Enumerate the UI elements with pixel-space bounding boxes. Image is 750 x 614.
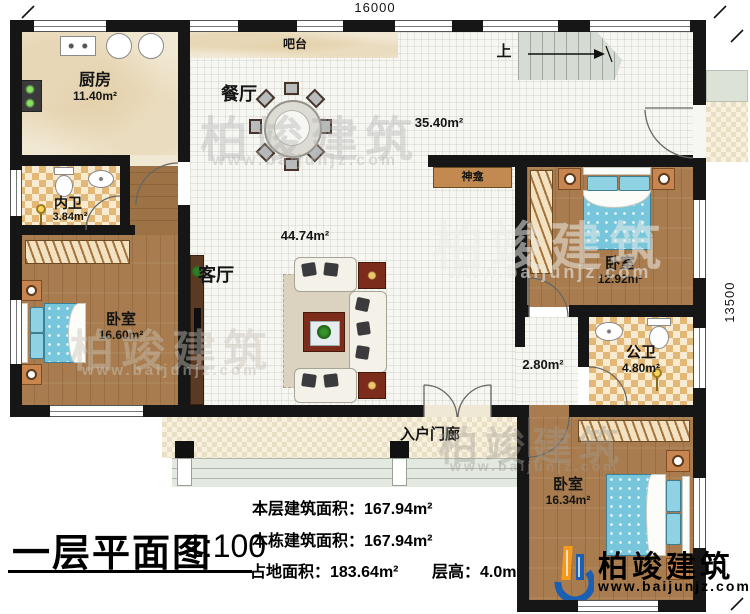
window xyxy=(34,20,106,32)
room-area-bedroom-bottom: 16.34m² xyxy=(530,494,606,507)
sink-icon xyxy=(595,322,623,341)
dim-top-label: 16000 xyxy=(340,1,410,15)
title-underline xyxy=(8,570,252,573)
stat-building-area: 本栋建筑面积：167.94m² xyxy=(252,527,433,551)
shower-stem xyxy=(656,377,658,391)
window xyxy=(693,328,706,388)
plan-title: 一层平面图 xyxy=(12,522,212,577)
floor-plan-canvas: 16000 13500 厨房 11.40m² 吧台 餐厅 35.40m² 上 内… xyxy=(0,0,750,614)
bed-pillow xyxy=(587,176,618,191)
room-label-living: 客厅 xyxy=(186,266,246,286)
window xyxy=(693,200,706,278)
porch-column-icon xyxy=(390,441,409,458)
wall-kitchen-bottom xyxy=(10,155,130,166)
nightstand-lamp-icon xyxy=(26,369,37,380)
room-label-innerbath: 内卫 xyxy=(38,196,98,211)
window xyxy=(190,20,238,32)
wall-shrine xyxy=(428,155,706,167)
nightstand-lamp-icon xyxy=(672,455,684,467)
room-area-living: 44.74m² xyxy=(268,229,342,243)
sofa-cushion xyxy=(355,345,370,360)
bed-headboard xyxy=(583,167,651,175)
side-table xyxy=(358,262,386,289)
plant-icon xyxy=(317,325,331,339)
window xyxy=(10,170,22,216)
room-area-publicbath: 4.80m² xyxy=(604,362,678,375)
door-opening xyxy=(130,155,178,166)
porch-column-base xyxy=(392,458,407,486)
dim-right-label: 13500 xyxy=(723,272,737,332)
watermark-url: www.baijunjz.com xyxy=(212,152,398,170)
room-area-kitchen: 11.40m² xyxy=(55,90,135,103)
wall-innerbath-right xyxy=(120,166,130,232)
nightstand-lamp-icon xyxy=(564,173,576,185)
room-label-kitchen: 厨房 xyxy=(55,72,135,90)
side-table xyxy=(358,372,386,399)
window xyxy=(297,20,343,32)
stat-land-area: 占地面积：183.64m² xyxy=(250,558,399,582)
wall-bedroommid-bottom-a xyxy=(515,305,529,317)
wall-living-west xyxy=(178,205,190,417)
window xyxy=(483,20,558,32)
wall-kitchen-right xyxy=(178,20,190,162)
hallway-floor xyxy=(125,160,178,234)
wardrobe-left xyxy=(25,240,130,264)
bed-pillow xyxy=(30,307,44,333)
toilet-icon xyxy=(54,167,74,175)
porch-column-base xyxy=(177,458,192,486)
room-area-innerbath: 3.84m² xyxy=(40,211,100,223)
dining-chair-icon xyxy=(284,82,299,95)
dim-tick xyxy=(731,30,743,42)
window xyxy=(590,20,690,32)
bed-pillow xyxy=(30,333,44,359)
sofa-cushion xyxy=(323,373,338,388)
window xyxy=(395,20,452,32)
sofa-cushion xyxy=(301,373,317,388)
bed-pillow xyxy=(666,513,681,545)
room-label-publicbath: 公卫 xyxy=(604,345,678,362)
dim-tick xyxy=(714,6,726,18)
wall-bedroommid-bottom-b xyxy=(569,305,706,317)
side-porch-slab xyxy=(706,70,748,102)
nightstand-lamp-icon xyxy=(658,173,670,185)
window xyxy=(10,300,22,364)
bed-pillow xyxy=(619,176,650,191)
company-logo: 柏竣建筑 www.baijunjz.com xyxy=(548,542,748,602)
nightstand-lamp-icon xyxy=(26,285,37,296)
door-opening xyxy=(693,105,706,158)
sofa-cushion xyxy=(301,262,317,277)
sink-icon xyxy=(88,170,114,188)
toilet-icon xyxy=(647,318,671,326)
kitchen-sink-icon xyxy=(60,36,96,56)
sofa-cushion xyxy=(356,321,371,336)
door-opening xyxy=(135,225,178,235)
sofa-cushion xyxy=(323,262,338,277)
window xyxy=(50,405,143,417)
room-label-bar: 吧台 xyxy=(262,38,328,51)
watermark-url: www.baijunjz.com xyxy=(450,458,619,474)
sofa-cushion xyxy=(355,297,370,312)
wall-corridor-stub xyxy=(515,317,525,347)
kitchen-basin-icon xyxy=(106,33,132,59)
shrine-label: 神龛 xyxy=(433,171,512,183)
room-label-bedroom-bottom: 卧室 xyxy=(532,477,604,494)
stat-storey-height: 层高：4.0m xyxy=(432,558,516,582)
stat-floor-area: 本层建筑面积：167.94m² xyxy=(252,495,433,519)
kitchen-basin2-icon xyxy=(138,33,164,59)
company-logo-icon xyxy=(548,542,594,600)
window xyxy=(693,478,706,548)
wall-bath-left xyxy=(578,317,589,367)
wall-bedroomleft-top xyxy=(10,225,135,235)
porch-column-icon xyxy=(175,441,194,458)
dim-tick xyxy=(22,6,34,18)
area-corridor: 2.80m² xyxy=(512,358,574,372)
watermark-url: www.baijunjz.com xyxy=(448,262,651,283)
company-website: www.baijunjz.com xyxy=(598,578,750,594)
watermark-url: www.baijunjz.com xyxy=(82,362,259,379)
toilet-bowl-icon xyxy=(55,175,73,197)
stairs-up-label: 上 xyxy=(492,44,516,61)
bed-pillow xyxy=(666,480,681,512)
side-porch-floor xyxy=(706,102,748,162)
